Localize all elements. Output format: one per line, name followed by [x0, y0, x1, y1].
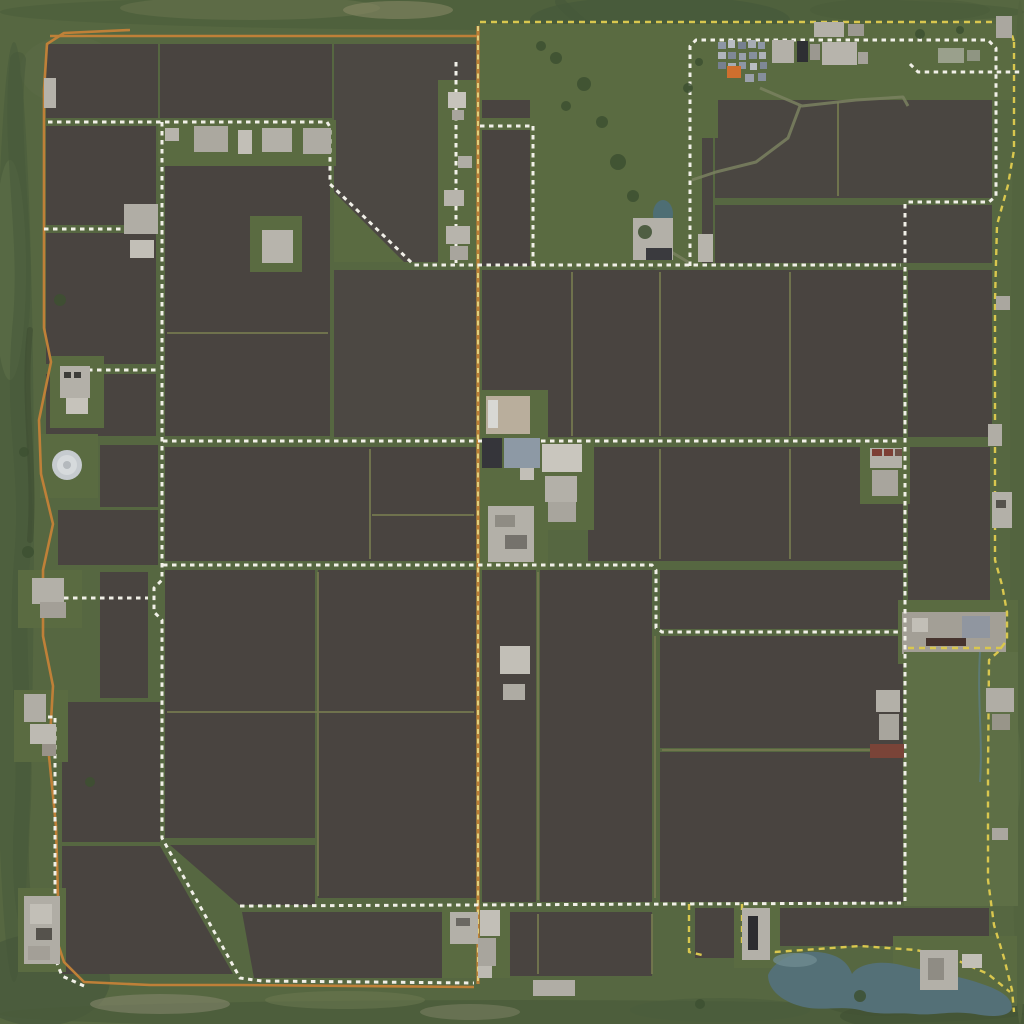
farmyard-building [542, 444, 582, 472]
farm-detail [996, 500, 1006, 508]
roadside-building [996, 16, 1012, 38]
farm-building [478, 966, 492, 978]
tree [956, 26, 964, 34]
farmyard-building [488, 506, 534, 562]
sellpoint-detail [926, 638, 966, 646]
village-building [814, 22, 844, 37]
village-building [967, 50, 980, 61]
farmyard-building [482, 438, 502, 468]
farmyard-building [548, 502, 576, 522]
grass-strip [478, 118, 536, 130]
village-house [739, 53, 746, 60]
village-building [303, 128, 331, 154]
village-house [745, 74, 754, 82]
village-building [165, 128, 179, 141]
map-canvas [0, 0, 1024, 1024]
field [908, 270, 992, 437]
village-house [748, 40, 756, 48]
farm-detail [505, 535, 527, 549]
farm-building [478, 938, 496, 966]
farm-building [480, 910, 500, 936]
farm-detail [456, 918, 470, 926]
farm-detail [928, 958, 944, 980]
farmyard-building [545, 476, 577, 502]
farm-building [32, 578, 64, 604]
tree [695, 58, 703, 66]
tree [854, 990, 866, 1002]
village-building [938, 48, 964, 63]
farm-building [60, 366, 90, 398]
farm-building [30, 904, 52, 924]
field [715, 205, 992, 263]
tree [627, 190, 639, 202]
field [715, 98, 992, 198]
barn [870, 744, 904, 758]
tree [561, 101, 571, 111]
village-house [760, 62, 767, 69]
farm-building [44, 78, 56, 108]
farm-building [876, 690, 900, 712]
roadside-building [986, 688, 1014, 712]
village-house [728, 40, 735, 48]
field [695, 908, 739, 958]
village-building [810, 44, 820, 60]
map-root [0, 0, 1024, 1024]
farm-detail [36, 928, 52, 940]
field [165, 447, 476, 561]
field [334, 270, 476, 437]
village-building [238, 130, 252, 154]
tree [596, 116, 608, 128]
farm-building [66, 398, 88, 414]
farm-building [879, 714, 899, 740]
sellpoint-building [962, 616, 990, 638]
farm-building [446, 226, 470, 244]
farm-building [452, 110, 464, 120]
field [482, 126, 530, 266]
village-house [728, 52, 736, 59]
grass-strip [530, 98, 702, 268]
village-house [749, 52, 757, 59]
terrain-patch [420, 1004, 520, 1020]
farm-building [503, 684, 525, 700]
village-house [750, 63, 757, 70]
field [62, 702, 160, 842]
farm-detail [495, 515, 515, 527]
farm-detail [74, 372, 81, 378]
roadside-building [992, 492, 1012, 528]
village-house [718, 52, 726, 59]
field [318, 570, 476, 898]
tree [683, 83, 693, 93]
terrain-patch [630, 998, 810, 1022]
field [660, 570, 903, 629]
sellpoint-building [912, 618, 928, 632]
village-building [858, 52, 868, 64]
village-building [772, 40, 794, 63]
village-building [194, 126, 228, 152]
lake-highlight [773, 953, 817, 967]
farm-building [42, 744, 56, 756]
village-house [758, 73, 766, 81]
orange-building [727, 66, 741, 78]
village-building [262, 128, 292, 152]
farm-building [130, 240, 154, 258]
tree [577, 77, 591, 91]
field [160, 44, 332, 118]
farm-building [872, 470, 898, 496]
tree [22, 546, 34, 558]
farm-detail [748, 916, 758, 950]
roadside-building [533, 980, 575, 996]
farm-detail [64, 372, 71, 378]
field [58, 510, 158, 565]
terrain-patch [343, 1, 453, 19]
farmyard-building [504, 438, 540, 468]
terrain-patch [90, 994, 230, 1014]
field [165, 166, 330, 436]
tree [610, 154, 626, 170]
storage-tank [63, 461, 71, 469]
farm-building [262, 230, 293, 263]
field [482, 570, 536, 902]
farm-building [698, 234, 713, 262]
field [660, 636, 903, 748]
tree [85, 777, 95, 787]
village-house [759, 52, 766, 59]
village-house [718, 42, 726, 49]
field [165, 570, 315, 838]
terrain-patch [265, 991, 425, 1009]
grass-strip [700, 98, 718, 138]
field [100, 445, 158, 507]
roadside-building [988, 424, 1002, 446]
farm-building [962, 954, 982, 968]
farm-building [450, 246, 468, 260]
farmyard-building [520, 468, 534, 480]
field [242, 912, 470, 978]
farm-detail [895, 449, 902, 456]
farm-building [40, 602, 66, 618]
farm-detail [872, 449, 882, 456]
farm-detail [884, 449, 893, 456]
farm-building [124, 204, 158, 234]
field [46, 44, 158, 118]
village-house [738, 42, 746, 49]
farm-building [448, 92, 466, 108]
tree [638, 225, 652, 239]
field [588, 447, 903, 561]
field [100, 572, 148, 698]
tree [550, 52, 562, 64]
field [660, 752, 903, 902]
farm-building [444, 190, 464, 206]
silo [488, 400, 498, 428]
dark-building [797, 41, 808, 62]
tree [54, 294, 66, 306]
field [540, 570, 652, 902]
roadside-building [992, 828, 1008, 840]
roadside-building [996, 296, 1010, 310]
farm-building [28, 946, 50, 960]
village-building [848, 24, 864, 36]
farm-building [458, 156, 472, 168]
roadside-building [992, 714, 1010, 730]
village-house [718, 62, 726, 69]
farm-building [450, 912, 478, 944]
farm-building [30, 724, 56, 744]
tree [695, 999, 705, 1009]
village-building [822, 42, 857, 65]
farm-building [24, 694, 46, 722]
tree [536, 41, 546, 51]
farm-detail [646, 248, 672, 260]
tree [19, 447, 29, 457]
village-house [758, 42, 765, 49]
farm-building [500, 646, 530, 674]
tree [915, 29, 925, 39]
